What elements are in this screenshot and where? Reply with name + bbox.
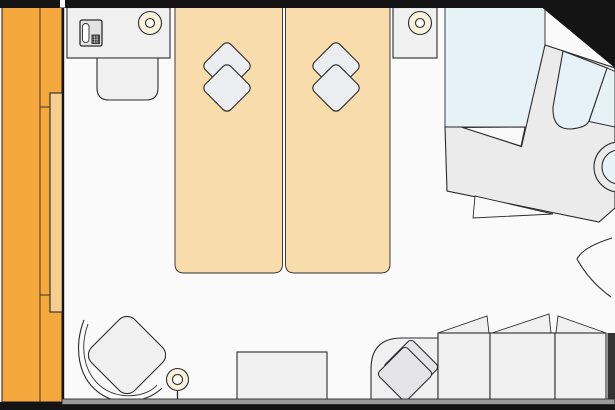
- sliding-glass-door: [50, 93, 63, 312]
- desk-chair: [97, 58, 158, 100]
- sofa-seat-3: [555, 333, 606, 403]
- sofa-seat-1: [438, 333, 490, 403]
- coffee-table: [237, 352, 327, 400]
- right-wall-block: [608, 333, 615, 402]
- nightstand-lamp-center: [416, 19, 425, 28]
- sofa-seat-2: [490, 333, 555, 403]
- floorplan-canvas: [0, 0, 615, 410]
- top-wall-gap: [60, 0, 65, 8]
- plan-root: [0, 0, 615, 410]
- desk-stool-center: [146, 19, 155, 28]
- telephone-handset: [83, 24, 90, 43]
- floorplan: [0, 0, 615, 410]
- top-wall: [0, 0, 615, 8]
- floor-lamp-center: [173, 375, 183, 385]
- bottom-wall-inner: [62, 399, 615, 405]
